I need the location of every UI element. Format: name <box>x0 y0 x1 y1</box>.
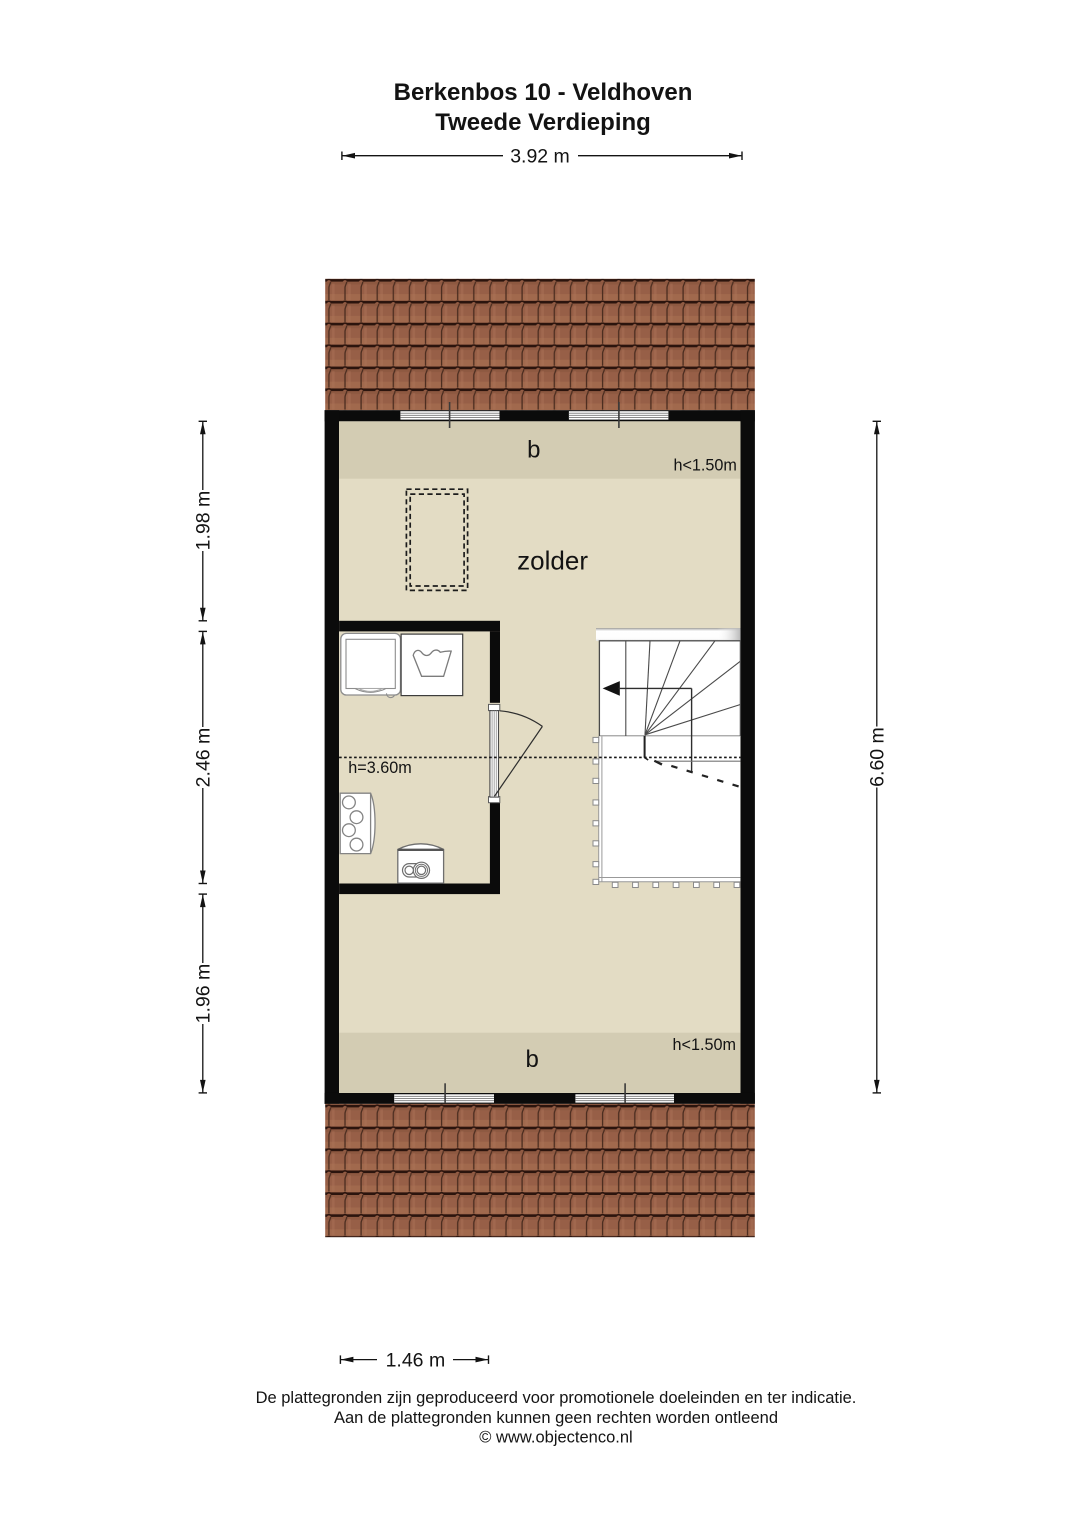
svg-text:6.60 m: 6.60 m <box>867 727 889 787</box>
svg-text:h<1.50m: h<1.50m <box>673 457 736 475</box>
svg-text:h<1.50m: h<1.50m <box>673 1036 736 1054</box>
svg-text:De plattegronden zijn geproduc: De plattegronden zijn geproduceerd voor … <box>256 1389 857 1407</box>
svg-text:Aan de plattegronden kunnen ge: Aan de plattegronden kunnen geen rechten… <box>334 1409 778 1427</box>
svg-text:1.96 m: 1.96 m <box>193 964 215 1024</box>
svg-text:1.46 m: 1.46 m <box>386 1350 446 1372</box>
svg-text:Tweede Verdieping: Tweede Verdieping <box>435 109 651 136</box>
svg-text:zolder: zolder <box>517 546 588 576</box>
svg-text:b: b <box>526 1046 539 1073</box>
svg-text:2.46 m: 2.46 m <box>193 728 215 788</box>
svg-text:© www.objectenco.nl: © www.objectenco.nl <box>479 1428 632 1446</box>
svg-text:3.92 m: 3.92 m <box>510 146 570 168</box>
svg-text:1.98 m: 1.98 m <box>193 491 215 551</box>
svg-text:b: b <box>527 436 540 463</box>
svg-text:Berkenbos 10 - Veldhoven: Berkenbos 10 - Veldhoven <box>394 79 693 106</box>
svg-text:h=3.60m: h=3.60m <box>348 759 411 777</box>
